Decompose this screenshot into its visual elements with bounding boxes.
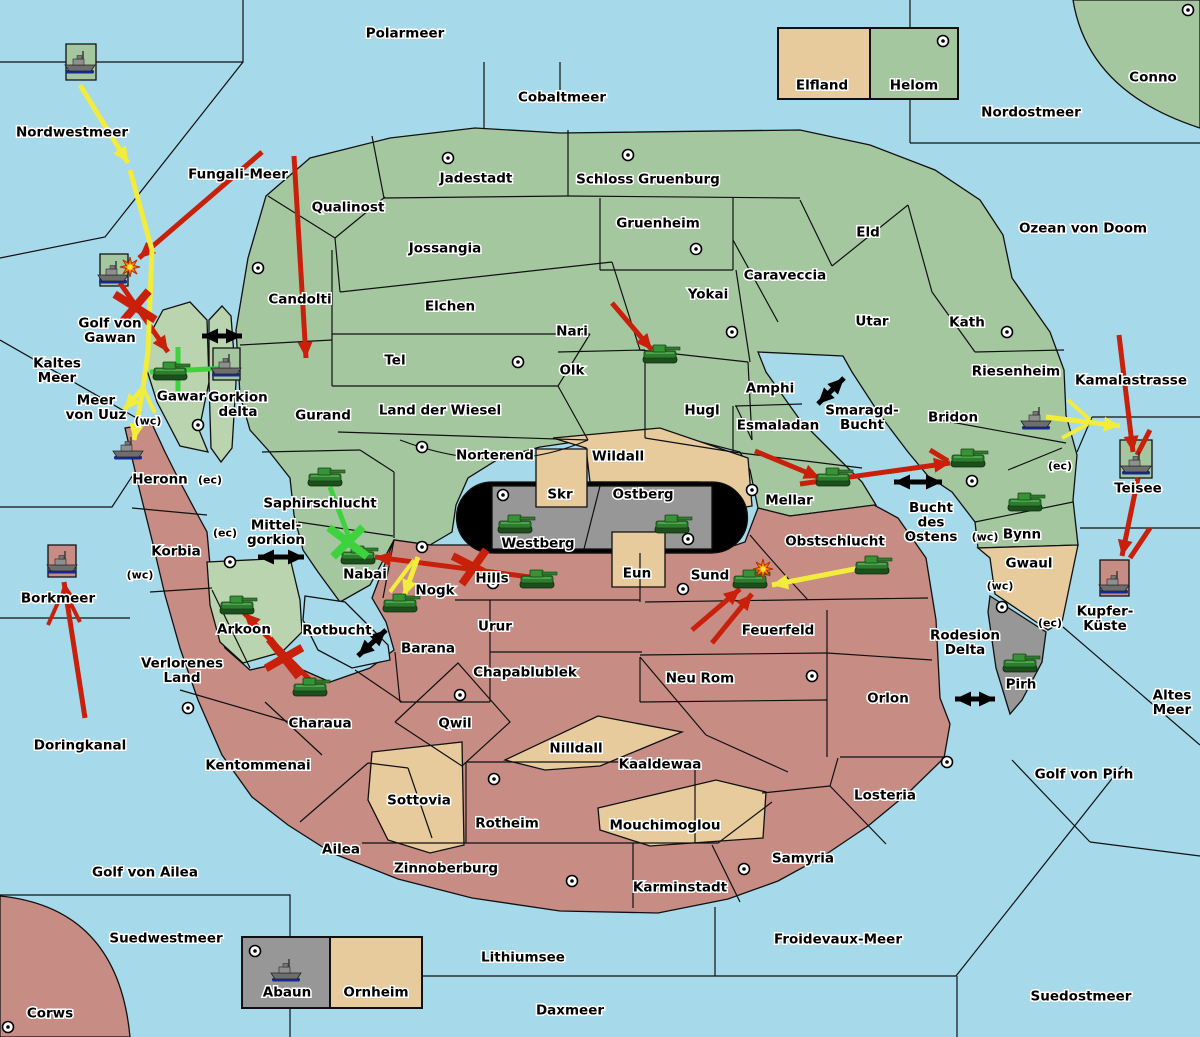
svg-text:Sottovia: Sottovia [387,793,451,809]
region-label-zinnoberburg: Zinnoberburg [394,861,498,877]
region-label-feuerfeld: Feuerfeld [742,623,815,639]
svg-text:(wc): (wc) [135,415,162,428]
svg-text:Nari: Nari [556,324,588,340]
svg-text:(ec): (ec) [198,474,222,487]
svg-text:Qualinost: Qualinost [312,200,385,216]
region-label-arkoon: Arkoon [217,622,271,638]
svg-text:Land: Land [164,670,201,686]
game-map: PolarmeerCobaltmeerNordwestmeerFungali-M… [0,0,1200,1037]
svg-text:Meer: Meer [1153,702,1192,718]
region-label-nari: Nari [556,324,588,340]
svg-text:delta: delta [218,404,257,420]
sea-label-suedwestmeer: Suedwestmeer [109,931,223,947]
region-label-corws: Corws [27,1006,73,1022]
svg-text:Bynn: Bynn [1003,527,1041,543]
svg-text:Lithiumsee: Lithiumsee [481,950,565,966]
sea-label-golf-von-ailea: Golf von Ailea [92,865,198,881]
sea-label-doringkanal: Doringkanal [34,738,126,754]
sea-label-rotbucht: Rotbucht [302,623,372,639]
svg-text:Caraveccia: Caraveccia [744,268,826,284]
svg-text:Barana: Barana [401,641,455,657]
capital-dot [683,534,694,545]
region-label-mouchimoglou: Mouchimoglou [609,818,720,834]
svg-text:Elfland: Elfland [796,78,848,94]
capital-dot [567,876,578,887]
svg-text:Hills: Hills [475,571,508,587]
svg-text:Gawar: Gawar [157,389,206,405]
svg-text:Nilldall: Nilldall [549,741,602,757]
capital-dot [455,690,466,701]
svg-text:Ostens: Ostens [905,529,958,545]
region-label-obstschlucht: Obstschlucht [785,534,885,550]
region-label-pirh: Pirh [1006,677,1037,693]
region-label-mellar: Mellar [765,493,813,509]
svg-text:Kaaldewaa: Kaaldewaa [619,757,702,773]
sea-label-lithiumsee: Lithiumsee [481,950,565,966]
region-label-nabai: Nabai [343,567,387,583]
svg-text:Feuerfeld: Feuerfeld [742,623,815,639]
svg-text:(wc): (wc) [127,569,154,582]
region-label-kaaldewaa: Kaaldewaa [619,757,702,773]
svg-text:Skr: Skr [547,487,573,503]
svg-text:Saphirschlucht: Saphirschlucht [263,496,377,512]
svg-text:Samyria: Samyria [772,851,834,867]
capital-dot [691,244,702,255]
map-canvas: PolarmeerCobaltmeerNordwestmeerFungali-M… [0,0,1200,1037]
region-label-karminstadt: Karminstadt [633,880,728,896]
svg-text:Corws: Corws [27,1006,73,1022]
coast-suffix-label-suffix: (ec) [198,474,222,487]
sea-label-cobaltmeer: Cobaltmeer [518,90,606,106]
svg-text:Nabai: Nabai [343,567,387,583]
capital-dot [443,153,454,164]
region-label-losteria: Losteria [854,788,916,804]
svg-text:Bucht: Bucht [840,417,885,433]
region-label-bridon: Bridon [928,410,978,426]
svg-text:Suedostmeer: Suedostmeer [1031,989,1132,1005]
svg-text:Korbia: Korbia [151,544,201,560]
svg-text:Chapablublek: Chapablublek [473,665,578,681]
region-gorkion-delta[interactable] [209,306,236,462]
region-label-abaun: Abaun [263,985,311,1001]
region-label-skr: Skr [547,487,573,503]
svg-text:Conno: Conno [1129,70,1177,86]
sea-label-altes-meer: AltesMeer [1153,687,1192,718]
sea-label-daxmeer: Daxmeer [536,1003,604,1019]
region-label-jossangia: Jossangia [408,241,482,257]
svg-text:Olk: Olk [559,363,585,379]
region-label-sottovia: Sottovia [387,793,451,809]
svg-text:Eun: Eun [623,566,651,582]
svg-text:Ozean von Doom: Ozean von Doom [1019,221,1147,237]
capital-dot [967,476,978,487]
region-label-nilldall: Nilldall [549,741,602,757]
region-label-yokai: Yokai [687,287,729,303]
svg-text:Schloss Gruenburg: Schloss Gruenburg [576,172,720,188]
sea-label-kamalastrasse: Kamalastrasse [1075,373,1187,389]
region-label-saphirschlucht: Saphirschlucht [263,496,377,512]
capital-dot [489,774,500,785]
region-label-caraveccia: Caraveccia [744,268,826,284]
svg-text:Tel: Tel [384,353,405,369]
region-label-ornheim: Ornheim [343,985,408,1001]
region-label-qualinost: Qualinost [312,200,385,216]
region-label-rotheim: Rotheim [475,816,539,832]
region-label-heronn: Heronn [132,472,188,488]
region-label-tel: Tel [384,353,405,369]
svg-text:Gwaul: Gwaul [1006,556,1053,572]
svg-text:Daxmeer: Daxmeer [536,1003,604,1019]
sea-label-mittel-gorkion: Mittel-gorkion [247,517,305,548]
svg-text:Fungali-Meer: Fungali-Meer [188,167,288,183]
svg-text:Küste: Küste [1083,618,1126,634]
region-label-ostberg: Ostberg [612,487,673,503]
svg-text:Neu Rom: Neu Rom [666,671,735,687]
svg-text:Golf von Pirh: Golf von Pirh [1035,767,1134,783]
svg-text:Pirh: Pirh [1006,677,1037,693]
svg-text:Arkoon: Arkoon [217,622,271,638]
coast-suffix-label-suffix: (wc) [127,569,154,582]
svg-text:Sund: Sund [691,568,730,584]
svg-text:Froidevaux-Meer: Froidevaux-Meer [774,932,902,948]
sea-label-kupfer-kueste: Kupfer-Küste [1077,603,1134,634]
capital-dot [250,946,261,957]
svg-text:Gawan: Gawan [84,330,135,346]
sea-label-suedostmeer: Suedostmeer [1031,989,1132,1005]
region-label-conno: Conno [1129,70,1177,86]
svg-text:(ec): (ec) [213,527,237,540]
svg-text:Karminstadt: Karminstadt [633,880,728,896]
region-label-chapablublek: Chapablublek [473,665,578,681]
svg-text:Doringkanal: Doringkanal [34,738,126,754]
capital-dot [807,671,818,682]
svg-text:Riesenheim: Riesenheim [972,364,1060,380]
capital-dot [739,864,750,875]
svg-text:(ec): (ec) [1048,460,1072,473]
region-label-kentommenai: Kentommenai [205,758,310,774]
svg-text:Kath: Kath [949,315,985,331]
svg-text:Ornheim: Ornheim [343,985,408,1001]
svg-text:(wc): (wc) [987,580,1014,593]
svg-text:Bridon: Bridon [928,410,978,426]
svg-text:Polarmeer: Polarmeer [366,26,445,42]
svg-text:Abaun: Abaun [263,985,311,1001]
svg-text:von Uuz: von Uuz [66,407,127,423]
region-label-gurand: Gurand [295,408,351,424]
region-label-elfland: Elfland [796,78,848,94]
region-label-olk: Olk [559,363,585,379]
region-label-esmaladan: Esmaladan [737,418,820,434]
sea-label-nordwestmeer: Nordwestmeer [16,125,128,141]
capital-dot [938,36,949,47]
capital-dot [513,357,524,368]
svg-text:Ostberg: Ostberg [612,487,673,503]
svg-text:(ec): (ec) [1038,617,1062,630]
region-label-ailea: Ailea [322,842,360,858]
svg-text:Suedwestmeer: Suedwestmeer [109,931,223,947]
svg-text:Eld: Eld [856,225,880,241]
capital-dot [678,584,689,595]
sea-label-golf-von-pirh: Golf von Pirh [1035,767,1134,783]
svg-text:Cobaltmeer: Cobaltmeer [518,90,606,106]
svg-text:Nordwestmeer: Nordwestmeer [16,125,128,141]
region-label-nogk: Nogk [415,583,455,599]
region-label-elchen: Elchen [425,299,475,315]
region-label-eld: Eld [856,225,880,241]
svg-text:Zinnoberburg: Zinnoberburg [394,861,498,877]
coast-suffix-label-suffix: (wc) [972,531,999,544]
region-label-utar: Utar [855,314,889,330]
svg-text:Nordostmeer: Nordostmeer [981,105,1081,121]
sea-label-ozean-von-doom: Ozean von Doom [1019,221,1147,237]
capital-dot [183,703,194,714]
svg-text:Esmaladan: Esmaladan [737,418,820,434]
sea-label-golf-von-gawan: Golf vonGawan [78,315,141,346]
region-label-samyria: Samyria [772,851,834,867]
region-label-schloss-gruenburg: Schloss Gruenburg [576,172,720,188]
svg-text:Kamalastrasse: Kamalastrasse [1075,373,1187,389]
svg-text:Kentommenai: Kentommenai [205,758,310,774]
region-label-urur: Urur [478,619,512,635]
coast-suffix-label-suffix: (ec) [213,527,237,540]
capital-dot [1183,5,1194,16]
capital-dot [417,442,428,453]
sea-label-nordostmeer: Nordostmeer [981,105,1081,121]
region-label-amphi: Amphi [746,381,794,397]
region-label-sund: Sund [691,568,730,584]
svg-text:Jossangia: Jossangia [408,241,482,257]
region-label-wildall: Wildall [592,449,644,465]
sea-label-borkmeer: Borkmeer [21,591,96,607]
svg-text:Westberg: Westberg [501,536,574,552]
coast-suffix-label-suffix: (ec) [1038,617,1062,630]
svg-text:Ailea: Ailea [322,842,360,858]
capital-dot [253,263,264,274]
capital-dot [727,327,738,338]
capital-dot [3,1022,14,1033]
svg-text:Utar: Utar [855,314,889,330]
svg-text:Hugl: Hugl [684,403,719,419]
region-label-helom: Helom [890,78,938,94]
capital-dot [225,557,236,568]
coast-suffix-label-suffix: (wc) [987,580,1014,593]
svg-text:Nogk: Nogk [415,583,455,599]
region-label-norterend: Norterend [456,448,534,464]
capital-dot [747,485,758,496]
svg-text:Yokai: Yokai [687,287,729,303]
region-label-korbia: Korbia [151,544,201,560]
svg-text:Orlon: Orlon [867,691,909,707]
sea-label-froidevaux-meer: Froidevaux-Meer [774,932,902,948]
svg-text:Amphi: Amphi [746,381,794,397]
svg-text:Teisee: Teisee [1114,481,1162,497]
capital-dot [623,150,634,161]
region-label-gruenheim: Gruenheim [616,216,700,232]
sea-label-teisee: Teisee [1114,481,1162,497]
svg-text:Qwil: Qwil [438,716,471,732]
region-label-westberg: Westberg [501,536,574,552]
svg-text:Borkmeer: Borkmeer [21,591,96,607]
svg-text:Mellar: Mellar [765,493,813,509]
region-label-kath: Kath [949,315,985,331]
capital-dot [942,757,953,768]
svg-text:Gurand: Gurand [295,408,351,424]
svg-text:Meer: Meer [38,370,77,386]
region-label-hills: Hills [475,571,508,587]
svg-text:Urur: Urur [478,619,512,635]
svg-text:Candolti: Candolti [268,292,331,308]
svg-text:Rotbucht: Rotbucht [302,623,372,639]
svg-text:Heronn: Heronn [132,472,188,488]
region-label-jadestadt: Jadestadt [439,171,513,187]
svg-text:Obstschlucht: Obstschlucht [785,534,885,550]
svg-text:Rotheim: Rotheim [475,816,539,832]
svg-text:Helom: Helom [890,78,938,94]
svg-text:Charaua: Charaua [288,716,351,732]
svg-text:Mouchimoglou: Mouchimoglou [609,818,720,834]
coast-suffix-label-suffix: (ec) [1048,460,1072,473]
region-label-hugl: Hugl [684,403,719,419]
region-label-land-der-wiesel: Land der Wiesel [379,403,501,419]
region-label-gawar: Gawar [157,389,206,405]
svg-text:Norterend: Norterend [456,448,534,464]
region-label-orlon: Orlon [867,691,909,707]
sea-label-fungali-meer: Fungali-Meer [188,167,288,183]
region-label-gwaul: Gwaul [1006,556,1053,572]
region-label-candolti: Candolti [268,292,331,308]
region-label-charaua: Charaua [288,716,351,732]
region-label-qwil: Qwil [438,716,471,732]
svg-text:(wc): (wc) [972,531,999,544]
svg-text:gorkion: gorkion [247,532,305,548]
svg-text:Land der Wiesel: Land der Wiesel [379,403,501,419]
svg-text:Gruenheim: Gruenheim [616,216,700,232]
coast-suffix-label-suffix: (wc) [135,415,162,428]
region-label-riesenheim: Riesenheim [972,364,1060,380]
region-label-barana: Barana [401,641,455,657]
svg-text:Wildall: Wildall [592,449,644,465]
sea-label-polarmeer: Polarmeer [366,26,445,42]
svg-text:Golf von Ailea: Golf von Ailea [92,865,198,881]
capital-dot [193,420,204,431]
svg-text:Losteria: Losteria [854,788,916,804]
region-label-bynn: Bynn [1003,527,1041,543]
capital-dot [997,602,1008,613]
explosion-icon [120,257,140,277]
svg-text:Delta: Delta [945,642,986,658]
explosion-icon [753,559,773,579]
svg-text:Jadestadt: Jadestadt [439,171,513,187]
region-label-eun: Eun [623,566,651,582]
region-label-neu-rom: Neu Rom [666,671,735,687]
capital-dot [1002,327,1013,338]
sea-label-kaltes-meer: KaltesMeer [33,355,81,386]
capital-dot [417,542,428,553]
capital-dot [498,490,509,501]
svg-text:Elchen: Elchen [425,299,475,315]
